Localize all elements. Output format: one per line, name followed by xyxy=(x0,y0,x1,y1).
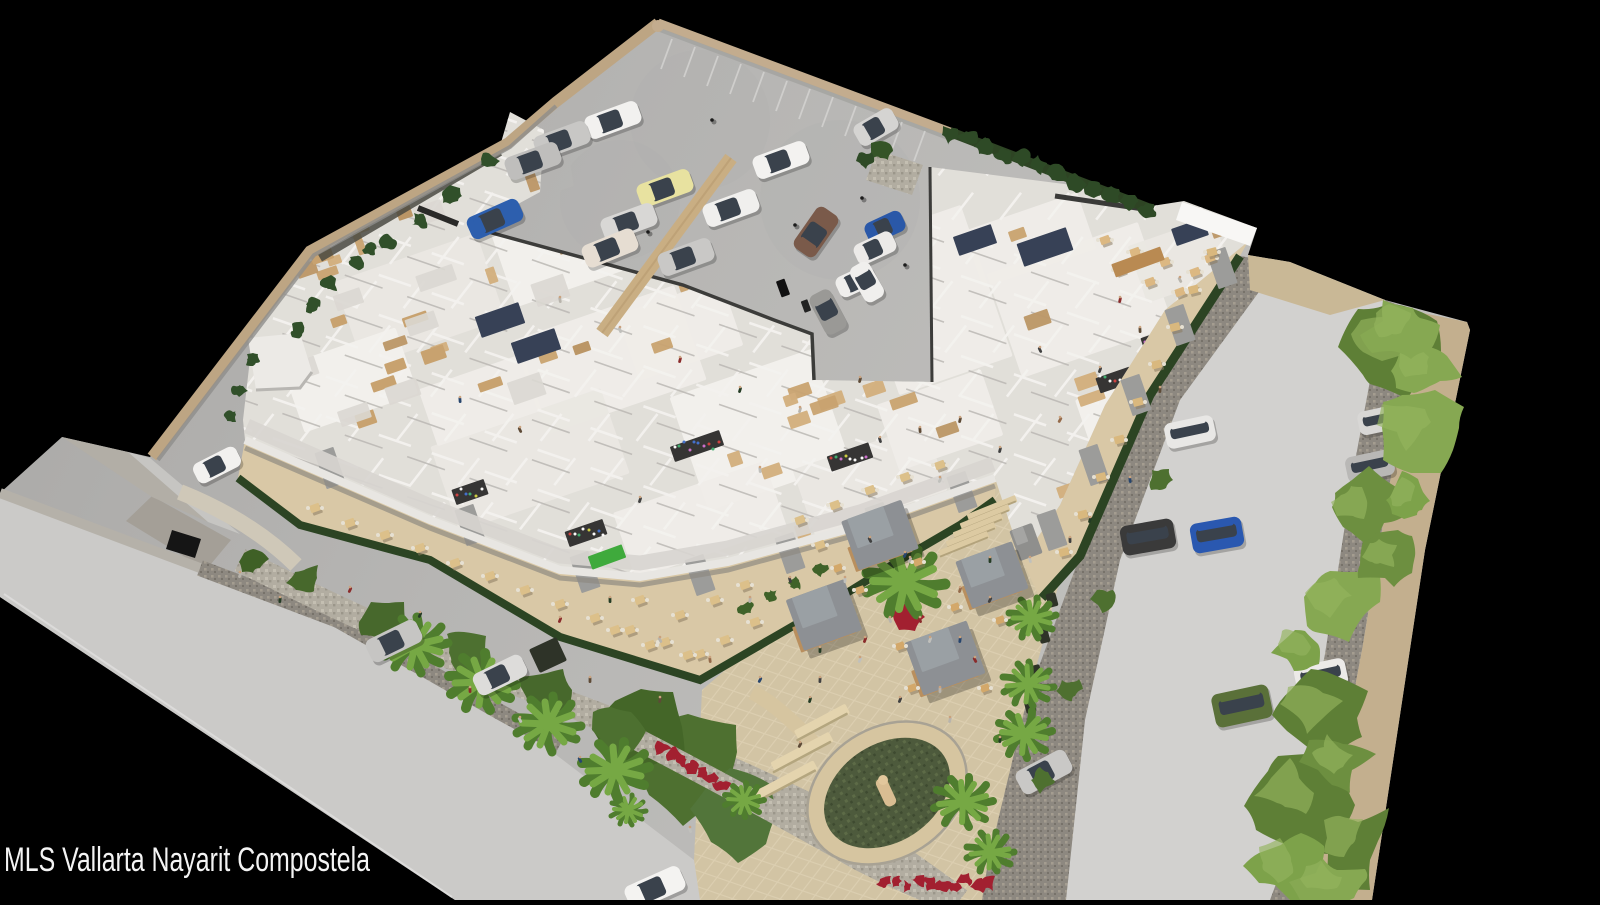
svg-text:MLS Vallarta Nayarit Compostel: MLS Vallarta Nayarit Compostela xyxy=(4,841,370,879)
